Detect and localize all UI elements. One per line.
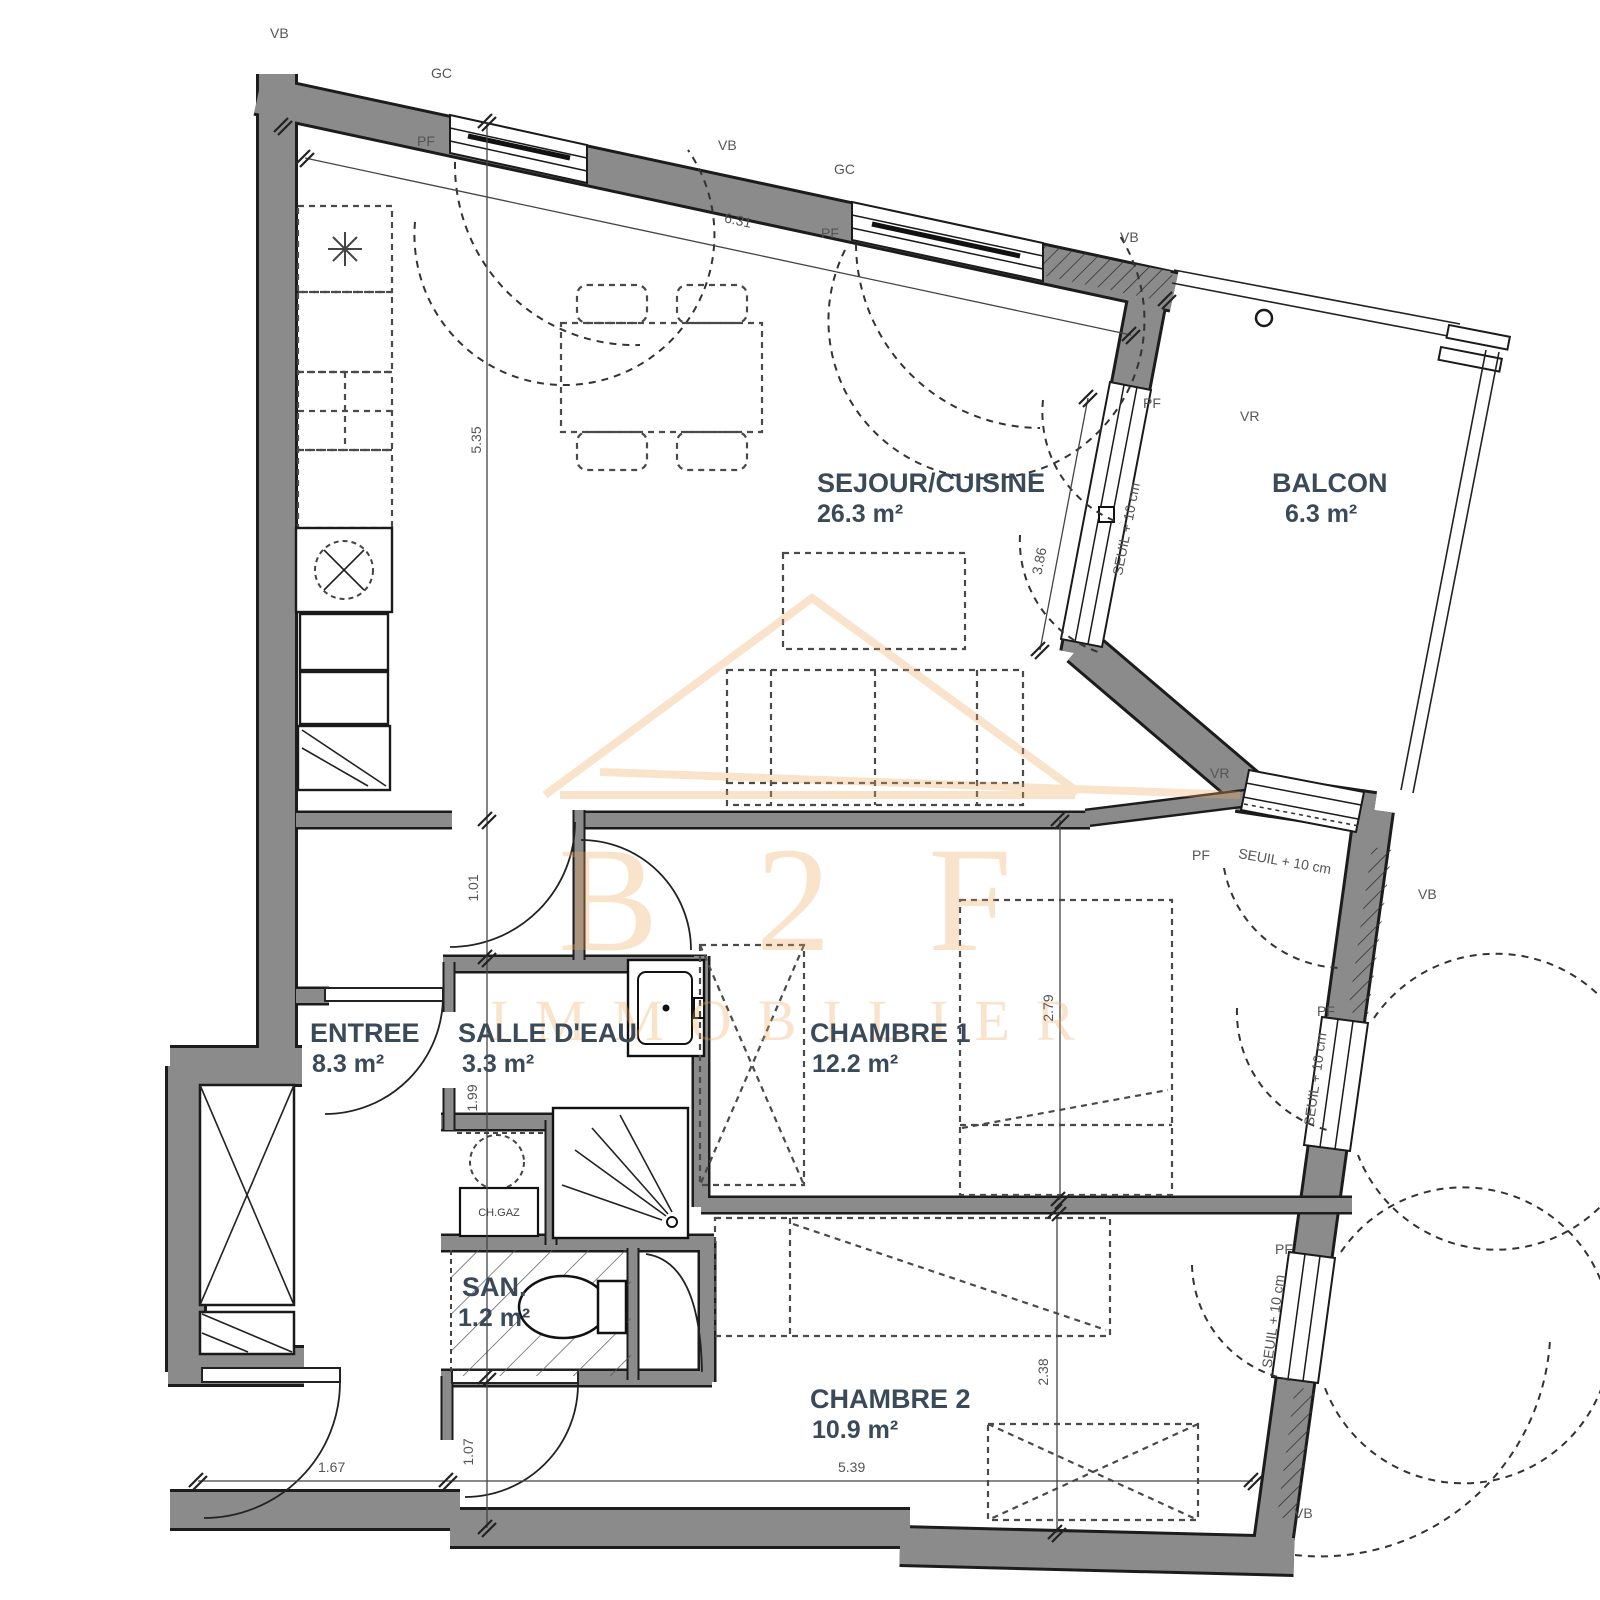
room-chambre1-area: 12.2 m² [812, 1050, 898, 1078]
closet-door-curve [646, 1254, 702, 1372]
window-chambre1-balcon [1241, 770, 1364, 832]
label-pf-ch2: PF [1275, 1241, 1293, 1257]
room-salledeau-name: SALLE D'EAU [458, 1018, 637, 1048]
room-entree-area: 8.3 m² [312, 1050, 384, 1078]
label-vb-topleft: VB [270, 25, 289, 41]
boiler-label: CH.GAZ [478, 1207, 520, 1219]
room-san-area: 1.2 m² [458, 1304, 530, 1332]
room-chambre2-area: 10.9 m² [812, 1416, 898, 1444]
dim-167: 1.67 [318, 1459, 345, 1475]
label-pf-ch1: PF [1317, 1003, 1335, 1019]
balcony-railing [1172, 270, 1510, 793]
label-pf-2: PF [821, 225, 839, 241]
label-vb-top3: VB [1120, 229, 1139, 245]
service-core [200, 1085, 294, 1354]
room-chambre1-name: CHAMBRE 1 [810, 1018, 971, 1048]
floor-plan: CH.GAZ [0, 0, 1600, 1600]
label-vb-bottomright: VB [1294, 1505, 1313, 1521]
door-corridor [452, 1370, 578, 1497]
living-furniture [727, 553, 1023, 805]
kitchen-units [296, 206, 392, 790]
chambre2-furniture [715, 1218, 1198, 1520]
room-sejour-area: 26.3 m² [817, 500, 903, 528]
dim-279: 2.79 [1040, 994, 1056, 1021]
label-pf-ch1balc: PF [1192, 847, 1210, 863]
gas-boiler: CH.GAZ [457, 1133, 547, 1236]
room-balcon-name: BALCON [1272, 468, 1388, 498]
wardrobe-2 [715, 1218, 1110, 1336]
window-top-2 [852, 202, 1043, 281]
dim-107: 1.07 [460, 1438, 476, 1465]
dim-238: 2.38 [1035, 1358, 1051, 1385]
label-gc-2: GC [834, 161, 855, 177]
shower [553, 1108, 688, 1238]
dining-set [561, 285, 762, 470]
window-sejour-balcon [1061, 382, 1151, 647]
label-seuil-ch1balc: SEUIL + 10 cm [1237, 845, 1332, 877]
room-san-name: SAN. [462, 1272, 527, 1302]
room-chambre2-name: CHAMBRE 2 [810, 1384, 971, 1414]
toilet [519, 1276, 626, 1338]
label-vr-balcon2: VR [1210, 765, 1229, 781]
label-vb-top2: VB [718, 137, 737, 153]
room-sejour-name: SEJOUR/CUISINE [817, 468, 1045, 498]
dim-199: 1.99 [464, 1084, 480, 1111]
dim-101: 1.01 [465, 874, 481, 901]
label-vr-balcon1: VR [1240, 408, 1259, 424]
room-entree-name: ENTREE [310, 1018, 420, 1048]
label-pf-1: PF [417, 133, 435, 149]
balcony-drain [1256, 310, 1272, 326]
dim-535: 5.35 [468, 426, 484, 453]
watermark-line1: B 2 F [558, 817, 1041, 983]
room-salledeau-area: 3.3 m² [462, 1050, 534, 1078]
window-top-1 [450, 115, 587, 183]
dim-386: 3.86 [1029, 546, 1050, 576]
label-vb-right1: VB [1418, 886, 1437, 902]
dim-539: 5.39 [838, 1459, 865, 1475]
label-pf-balcon: PF [1143, 395, 1161, 411]
wall-hatching [1036, 244, 1392, 1520]
label-gc-1: GC [431, 65, 452, 81]
room-balcon-area: 6.3 m² [1285, 500, 1357, 528]
freezer-star [328, 232, 362, 266]
